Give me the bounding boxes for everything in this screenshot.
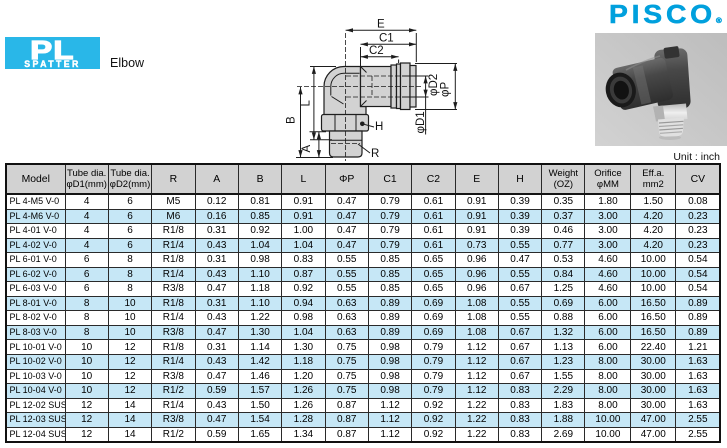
svg-text:C1: C1 (379, 33, 394, 45)
svg-text:L: L (301, 100, 313, 107)
svg-text:E: E (377, 19, 385, 31)
svg-text:H: H (375, 121, 383, 133)
svg-text:C2: C2 (369, 45, 384, 57)
svg-text:φD1: φD1 (415, 111, 427, 133)
svg-text:φD2: φD2 (428, 74, 440, 96)
svg-text:A: A (301, 145, 313, 153)
svg-text:R: R (371, 148, 379, 160)
svg-text:φP: φP (440, 82, 452, 97)
svg-text:B: B (286, 116, 298, 124)
